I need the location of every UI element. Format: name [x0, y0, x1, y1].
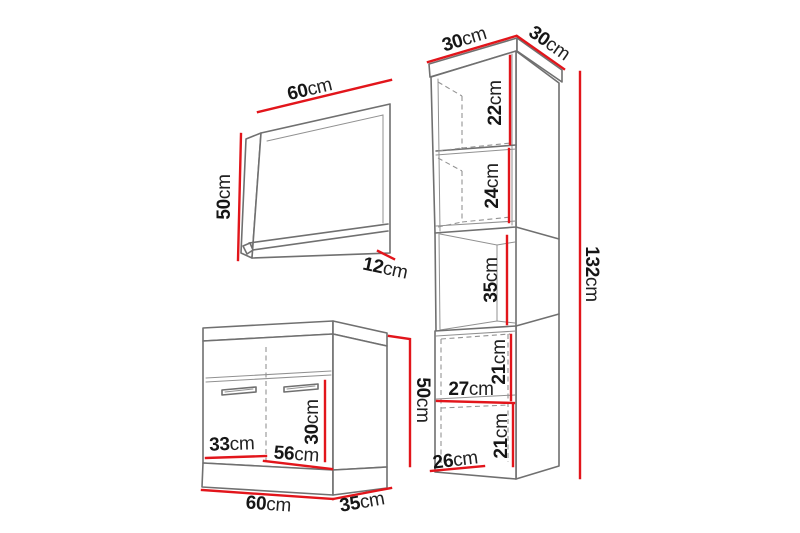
- mirror-front-face: [252, 104, 390, 258]
- cabinet-inner-width-label: 56cm: [273, 442, 320, 466]
- furniture-dimension-diagram: 60cm 50cm 12cm 33cm 56cm 30cm 50cm: [0, 0, 800, 533]
- tall-upper-compartment-unit: cm: [489, 339, 510, 364]
- tall-lower-compartment-value: 21: [491, 437, 512, 458]
- mirror-height-value: 50: [214, 199, 235, 220]
- cabinet-door-height-value: 30: [302, 424, 323, 445]
- mirror-height-dim-line: [238, 134, 241, 260]
- cabinet-inner-width-unit: cm: [294, 444, 320, 467]
- cabinet-inner-width-left-value: 33: [209, 434, 230, 456]
- mirror-height-unit: cm: [214, 174, 235, 199]
- tall-compartment-width-unit: cm: [469, 379, 494, 400]
- tall-upper-front-frame: [431, 51, 516, 233]
- tall-bottom-width-unit: cm: [452, 447, 479, 471]
- mirror-width-unit: cm: [305, 74, 334, 100]
- tall-top-shelf-label: 22cm: [485, 80, 506, 125]
- cabinet-width-label: 60cm: [245, 492, 292, 516]
- tall-top-shelf-value: 22: [485, 105, 506, 126]
- tall-lower-compartment-label: 21cm: [491, 413, 512, 458]
- cabinet-width-unit: cm: [266, 494, 292, 517]
- tall-open-section-unit: cm: [481, 257, 502, 282]
- diagram-svg: 60cm 50cm 12cm 33cm 56cm 30cm 50cm: [0, 0, 800, 533]
- cabinet-side-face: [333, 334, 387, 470]
- tall-height-label: 132cm: [581, 246, 602, 302]
- tall-height-unit: cm: [581, 277, 602, 302]
- cabinet-height-label: 50cm: [412, 377, 433, 422]
- tall-compartment-width-label: 27cm: [448, 379, 493, 400]
- cabinet-door-height-label: 30cm: [302, 399, 323, 444]
- cabinet-inner-width-left-label: 33cm: [209, 433, 255, 456]
- tall-upper-compartment-label: 21cm: [489, 339, 510, 384]
- cabinet-height-unit: cm: [412, 398, 433, 423]
- cabinet-width-value: 60: [245, 492, 267, 514]
- open-section-left-edge: [435, 233, 436, 331]
- tall-second-shelf-value: 24: [482, 187, 503, 208]
- open-section-ceiling: [440, 234, 515, 245]
- open-section-left-inner: [439, 233, 440, 331]
- mirror-shelf-depth-label: 12cm: [361, 254, 410, 284]
- cabinet-height-dim-line: [389, 336, 410, 466]
- tall-top-shelf-unit: cm: [485, 80, 506, 105]
- cabinet-inner-width-value: 56: [273, 442, 295, 464]
- tall-upper-side-face: [516, 51, 559, 239]
- cabinet-height-value: 50: [412, 377, 433, 398]
- tall-open-section-label: 35cm: [481, 257, 502, 302]
- tall-lower-side-face: [516, 314, 559, 479]
- tall-second-shelf-label: 24cm: [482, 163, 503, 208]
- cabinet-inner-width-left-unit: cm: [229, 433, 254, 455]
- tall-open-section-value: 35: [481, 281, 502, 302]
- tall-lower-compartment-unit: cm: [491, 413, 512, 438]
- cabinet-depth-unit: cm: [358, 488, 386, 513]
- cabinet-door-height-unit: cm: [302, 399, 323, 424]
- tall-bottom-width-value: 26: [432, 450, 455, 473]
- tall-height-value: 132: [581, 246, 602, 277]
- tall-second-shelf-unit: cm: [482, 163, 503, 188]
- mirror-drawing: [241, 104, 390, 258]
- washbasin-cabinet-drawing: [202, 321, 387, 495]
- tall-compartment-width-value: 27: [448, 379, 469, 400]
- mirror-height-label: 50cm: [214, 174, 235, 219]
- mirror-shelf-depth-unit: cm: [381, 258, 410, 284]
